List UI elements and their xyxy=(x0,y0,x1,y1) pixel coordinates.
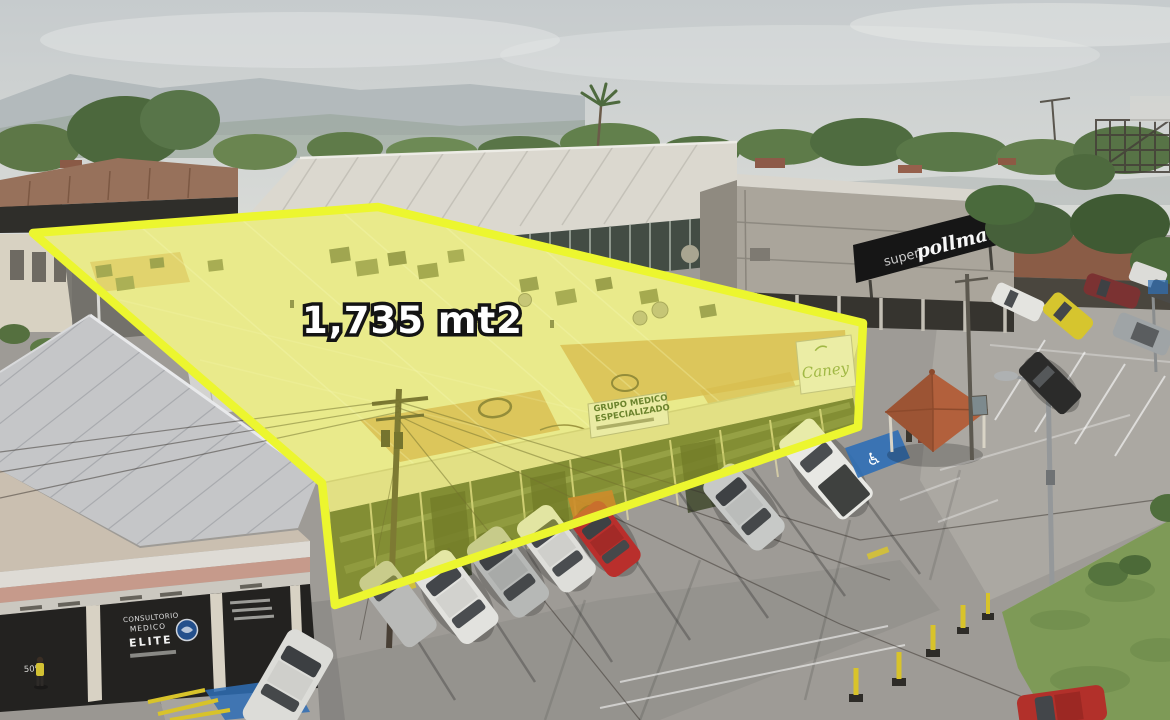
aerial-property-photo: super pollmart xyxy=(0,0,1170,720)
area-label: 1,735 mt2 xyxy=(302,299,523,342)
